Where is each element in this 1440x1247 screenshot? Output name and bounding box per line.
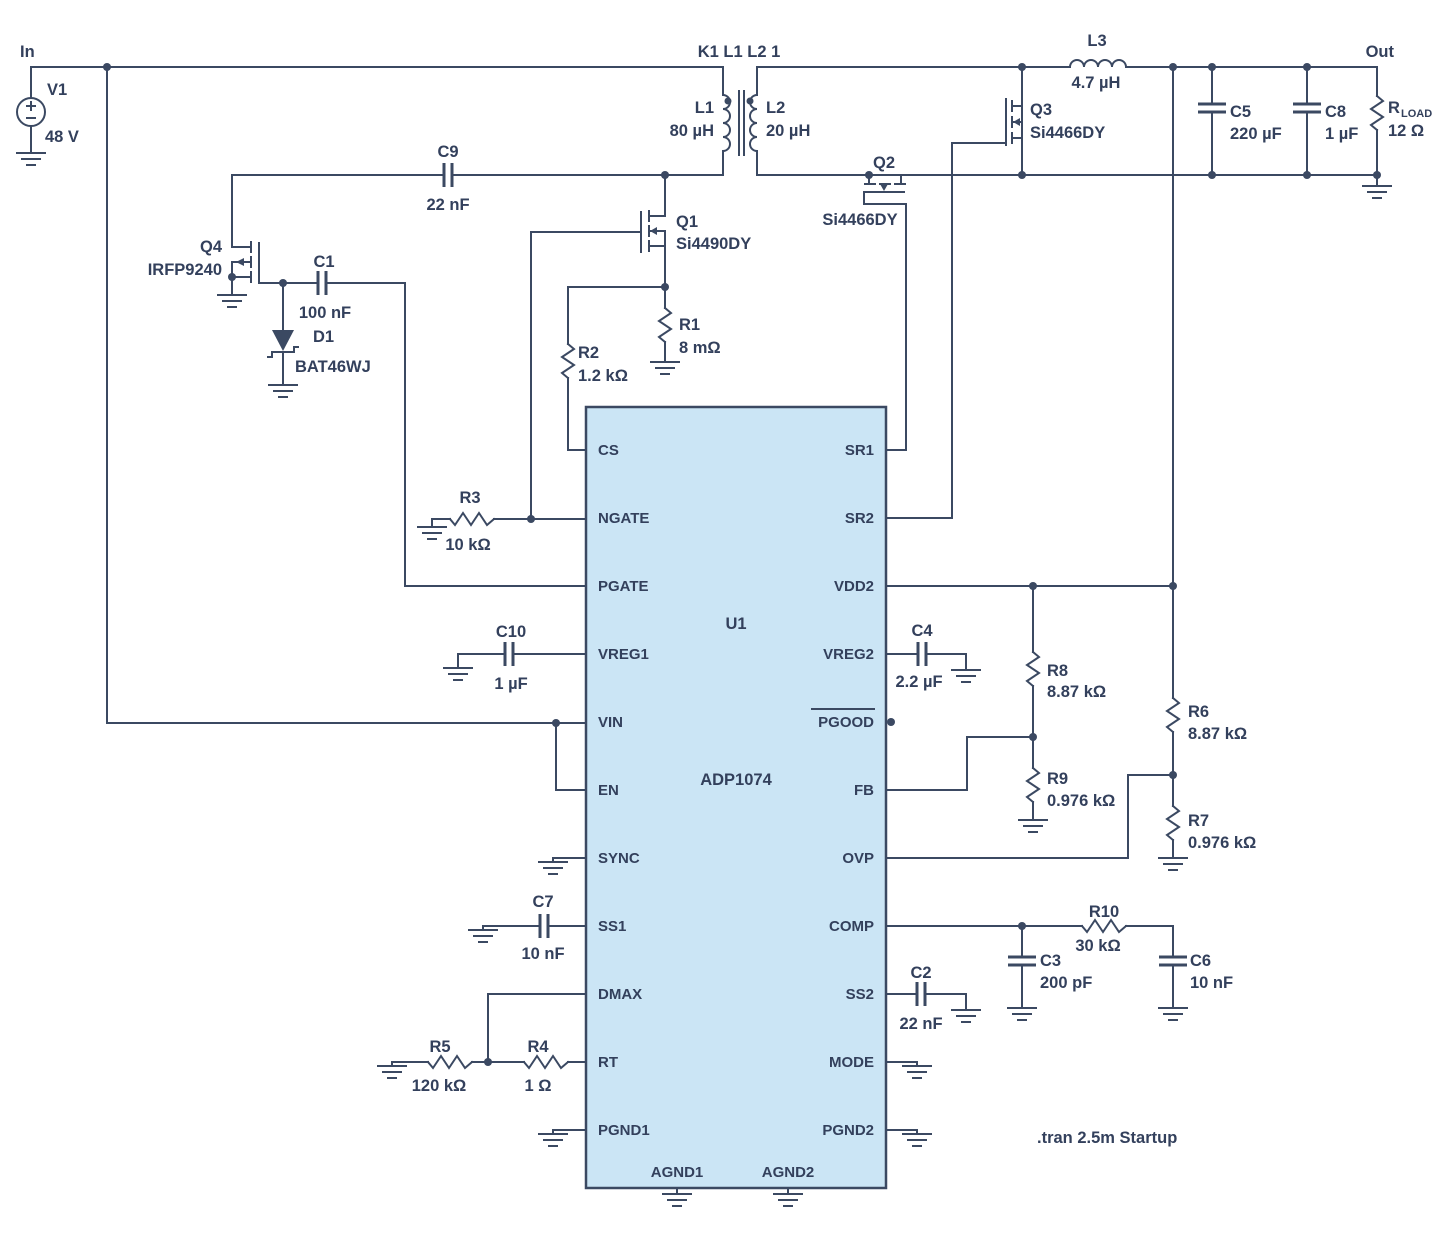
r6-value: 8.87 kΩ (1188, 725, 1247, 743)
ic-pin-vreg1: VREG1 (598, 646, 649, 663)
schematic-canvas: CS NGATE PGATE VREG1 VIN EN SYNC SS1 DMA… (0, 0, 1440, 1247)
r3-value: 10 kΩ (445, 536, 490, 554)
ic-pin-ovp: OVP (842, 850, 874, 867)
capacitor-C6 (1159, 957, 1187, 965)
resistor-R1 (659, 308, 671, 342)
rload-value: 12 Ω (1388, 122, 1424, 140)
l2-ref: L2 (766, 99, 785, 117)
capacitor-C8 (1293, 104, 1321, 112)
ic-pin-pgnd2: PGND2 (822, 1122, 874, 1139)
inductor-L3 (1070, 60, 1126, 67)
q2-part: Si4466DY (822, 211, 897, 229)
ic-pin-sr1: SR1 (845, 442, 874, 459)
mosfet-Q2 (864, 184, 905, 192)
ic-pin-mode: MODE (829, 1054, 874, 1071)
c10-ref: C10 (496, 623, 526, 641)
c1-value: 100 nF (299, 304, 351, 322)
r2-value: 1.2 kΩ (578, 367, 628, 385)
resistor-R3 (450, 513, 494, 525)
voltage-source-V1 (17, 98, 45, 126)
v1-ref: V1 (47, 81, 67, 99)
r6-ref: R6 (1188, 703, 1209, 721)
ic-U1-ADP1074: CS NGATE PGATE VREG1 VIN EN SYNC SS1 DMA… (586, 407, 886, 1188)
l1-value: 80 µH (670, 122, 714, 140)
q2-ref: Q2 (873, 154, 895, 172)
capacitor-C4 (918, 642, 926, 666)
ic-pin-comp: COMP (829, 918, 874, 935)
rload-ref: R (1388, 99, 1400, 117)
capacitor-C2 (917, 982, 925, 1006)
ic-pin-vreg2: VREG2 (823, 646, 874, 663)
ic-pin-en: EN (598, 782, 619, 799)
resistor-R10 (1082, 920, 1126, 932)
c3-ref: C3 (1040, 952, 1061, 970)
mosfet-Q1 (641, 211, 665, 252)
c8-value: 1 µF (1325, 125, 1358, 143)
c1-ref: C1 (313, 253, 334, 271)
ic-pin-fb: FB (854, 782, 874, 799)
net-label-out: Out (1366, 43, 1395, 61)
ic-pin-rt: RT (598, 1054, 618, 1071)
ic-pin-ss1: SS1 (598, 918, 626, 935)
spice-directive: .tran 2.5m Startup (1037, 1129, 1177, 1147)
c2-ref: C2 (910, 964, 931, 982)
resistor-R8 (1027, 652, 1039, 686)
c4-ref: C4 (911, 622, 933, 640)
q4-part: IRFP9240 (148, 261, 222, 279)
q1-part: Si4490DY (676, 235, 751, 253)
l3-value: 4.7 µH (1072, 74, 1121, 92)
diode-D1 (268, 330, 298, 357)
c6-value: 10 nF (1190, 974, 1233, 992)
r5-value: 120 kΩ (412, 1077, 467, 1095)
l2-value: 20 µH (766, 122, 810, 140)
c7-value: 10 nF (521, 945, 564, 963)
r9-ref: R9 (1047, 770, 1068, 788)
ic-ref: U1 (725, 615, 746, 633)
r3-ref: R3 (459, 489, 480, 507)
r2-ref: R2 (578, 344, 599, 362)
c9-ref: C9 (437, 143, 458, 161)
ic-pin-vdd2: VDD2 (834, 578, 874, 595)
capacitor-C9 (444, 163, 452, 187)
r1-ref: R1 (679, 316, 700, 334)
r9-value: 0.976 kΩ (1047, 792, 1115, 810)
v1-value: 48 V (45, 128, 79, 146)
c2-value: 22 nF (899, 1015, 942, 1033)
q3-part: Si4466DY (1030, 124, 1105, 142)
net-label-in: In (20, 43, 35, 61)
transformer-coupling: K1 L1 L2 1 (698, 43, 781, 61)
c9-value: 22 nF (426, 196, 469, 214)
ic-pin-agnd2: AGND2 (762, 1164, 815, 1181)
rload-sub: LOAD (1401, 108, 1432, 120)
ic-pin-sync: SYNC (598, 850, 640, 867)
d1-ref: D1 (313, 328, 334, 346)
c3-value: 200 pF (1040, 974, 1092, 992)
capacitor-C7 (540, 914, 548, 938)
l1-ref: L1 (695, 99, 714, 117)
r10-value: 30 kΩ (1075, 937, 1120, 955)
ic-pin-dmax: DMAX (598, 986, 642, 1003)
c5-ref: C5 (1230, 103, 1251, 121)
resistor-R4 (524, 1056, 568, 1068)
r5-ref: R5 (429, 1038, 450, 1056)
resistor-R9 (1027, 768, 1039, 802)
resistor-R7 (1167, 806, 1179, 840)
ic-pin-sr2: SR2 (845, 510, 874, 527)
c5-value: 220 µF (1230, 125, 1282, 143)
capacitor-C5 (1198, 104, 1226, 112)
c4-value: 2.2 µF (895, 673, 942, 691)
capacitor-C3 (1008, 957, 1036, 965)
capacitor-C1 (318, 271, 326, 295)
pgood-open-dot (887, 718, 895, 726)
ic-pin-vin: VIN (598, 714, 623, 731)
c8-ref: C8 (1325, 103, 1346, 121)
r4-ref: R4 (527, 1038, 549, 1056)
c7-ref: C7 (532, 893, 553, 911)
r7-ref: R7 (1188, 812, 1209, 830)
ic-pin-pgnd1: PGND1 (598, 1122, 650, 1139)
r10-ref: R10 (1089, 903, 1119, 921)
schematic-page: CS NGATE PGATE VREG1 VIN EN SYNC SS1 DMA… (0, 0, 1440, 1247)
r8-value: 8.87 kΩ (1047, 683, 1106, 701)
resistor-R2 (562, 344, 574, 378)
r7-value: 0.976 kΩ (1188, 834, 1256, 852)
capacitor-C10 (505, 642, 513, 666)
ic-pin-agnd1: AGND1 (651, 1164, 704, 1181)
l3-ref: L3 (1087, 32, 1106, 50)
q1-ref: Q1 (676, 213, 698, 231)
ic-pin-ngate: NGATE (598, 510, 649, 527)
transformer-K1 (723, 91, 757, 155)
r1-value: 8 mΩ (679, 339, 721, 357)
q3-ref: Q3 (1030, 101, 1052, 119)
c10-value: 1 µF (494, 675, 527, 693)
ic-part: ADP1074 (700, 771, 772, 789)
resistor-R6 (1167, 698, 1179, 732)
q4-ref: Q4 (200, 238, 223, 256)
ic-pin-pgate: PGATE (598, 578, 649, 595)
d1-part: BAT46WJ (295, 358, 371, 376)
r8-ref: R8 (1047, 662, 1068, 680)
ic-pin-pgood: PGOOD (818, 714, 874, 731)
resistor-R5 (428, 1056, 472, 1068)
c6-ref: C6 (1190, 952, 1211, 970)
ic-pin-cs: CS (598, 442, 619, 459)
resistor-RLOAD (1371, 96, 1383, 130)
r4-value: 1 Ω (525, 1077, 552, 1095)
ic-pin-ss2: SS2 (846, 986, 874, 1003)
